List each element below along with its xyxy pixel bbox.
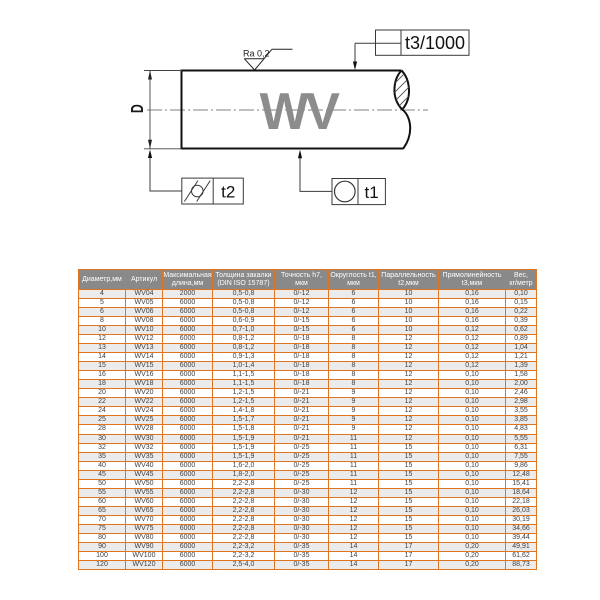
svg-text:Ra 0,2: Ra 0,2 [243,48,270,58]
svg-text:t2: t2 [221,183,235,202]
svg-text:D: D [128,104,148,113]
svg-text:t1: t1 [365,183,379,202]
svg-text:t3/1000: t3/1000 [405,33,465,53]
svg-text:WV: WV [260,83,341,141]
